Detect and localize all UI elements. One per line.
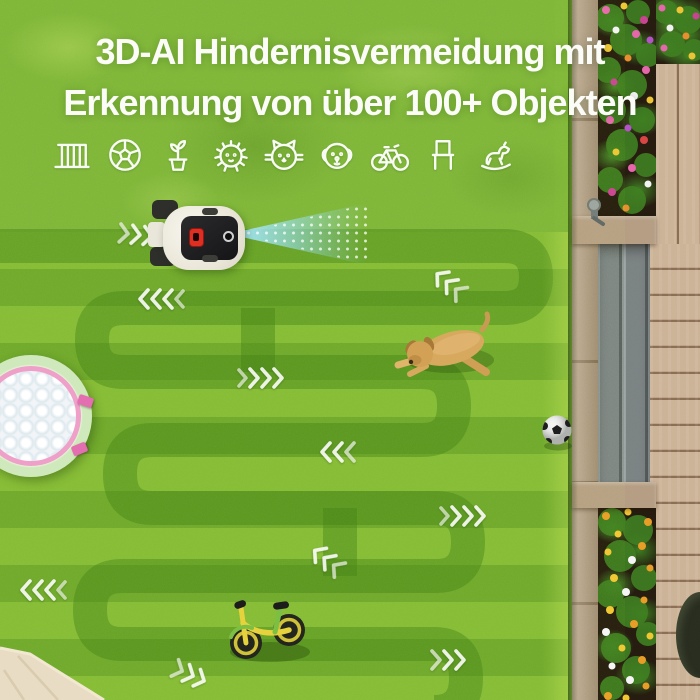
product-hero-image: 3D-AI Hindernisvermeidung mit Erkennung … <box>0 0 700 700</box>
path-arrow-right <box>416 648 468 672</box>
detected-objects-icon-row <box>0 133 568 177</box>
potted-plant-icon <box>156 133 200 177</box>
path-arrow-left <box>18 578 70 602</box>
bicycle-icon <box>368 133 412 177</box>
soccer-ball-icon <box>103 133 147 177</box>
hedgehog-icon <box>209 133 253 177</box>
headline: 3D-AI Hindernisvermeidung mit Erkennung … <box>10 26 690 128</box>
soccer-ball-object <box>540 414 576 452</box>
path-arrow-right <box>436 504 488 528</box>
robot-detail <box>202 255 218 262</box>
rocking-horse-icon <box>474 133 518 177</box>
pool-water-quilt <box>0 366 81 466</box>
chair-icon <box>421 133 465 177</box>
robot-camera <box>223 231 234 242</box>
parasol-corner <box>0 642 110 700</box>
flower-bed-bottom <box>598 508 656 700</box>
dog-icon <box>315 133 359 177</box>
headline-line2: Erkennung von über 100+ Objekten <box>10 77 690 128</box>
path-arrow-left <box>136 287 188 311</box>
balance-bike <box>218 590 323 670</box>
garden-tap <box>584 196 610 228</box>
path-arrow-left <box>318 440 370 464</box>
fence-icon <box>50 133 94 177</box>
path-arrow-right <box>234 366 286 390</box>
cat-icon <box>262 133 306 177</box>
metal-panel-wall <box>598 244 650 484</box>
lying-dog <box>390 308 505 386</box>
robot-detail <box>202 208 218 215</box>
robot-stop-button <box>189 228 204 247</box>
planter-edge <box>572 482 656 508</box>
lawn-edge-highlight <box>542 232 568 700</box>
headline-line1: 3D-AI Hindernisvermeidung mit <box>10 26 690 77</box>
